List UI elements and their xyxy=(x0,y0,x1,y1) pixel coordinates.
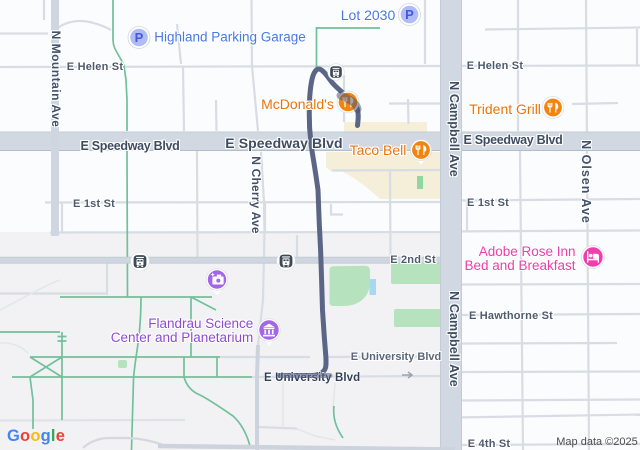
svg-text:P: P xyxy=(405,7,414,22)
svg-text:P: P xyxy=(135,30,144,45)
